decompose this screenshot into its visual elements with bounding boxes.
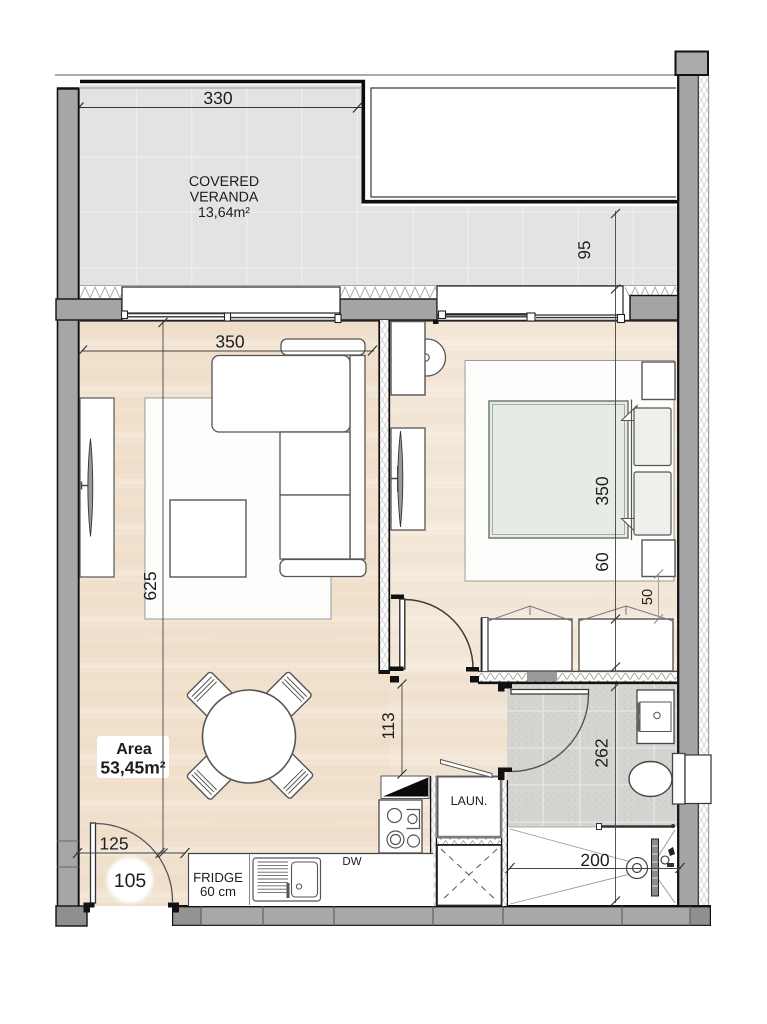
svg-text:105: 105 <box>114 870 147 892</box>
svg-text:95: 95 <box>575 241 594 260</box>
svg-text:LAUN.: LAUN. <box>451 794 488 808</box>
svg-text:60: 60 <box>592 552 612 572</box>
svg-text:330: 330 <box>203 88 232 108</box>
svg-text:262: 262 <box>592 738 612 767</box>
svg-text:350: 350 <box>215 331 244 351</box>
svg-text:VERANDA: VERANDA <box>190 189 259 205</box>
svg-text:200: 200 <box>580 850 609 870</box>
svg-text:DW: DW <box>342 856 361 868</box>
svg-text:53,45m²: 53,45m² <box>100 757 165 777</box>
svg-text:125: 125 <box>99 833 128 853</box>
svg-text:Area: Area <box>116 741 152 758</box>
svg-text:113: 113 <box>379 712 398 739</box>
svg-text:50: 50 <box>640 589 656 605</box>
svg-text:COVERED: COVERED <box>189 174 259 190</box>
svg-text:60 cm: 60 cm <box>200 884 236 899</box>
svg-text:FRIDGE: FRIDGE <box>193 870 243 885</box>
svg-text:625: 625 <box>140 571 160 600</box>
svg-text:13,64m²: 13,64m² <box>198 205 250 221</box>
svg-text:350: 350 <box>592 476 612 505</box>
